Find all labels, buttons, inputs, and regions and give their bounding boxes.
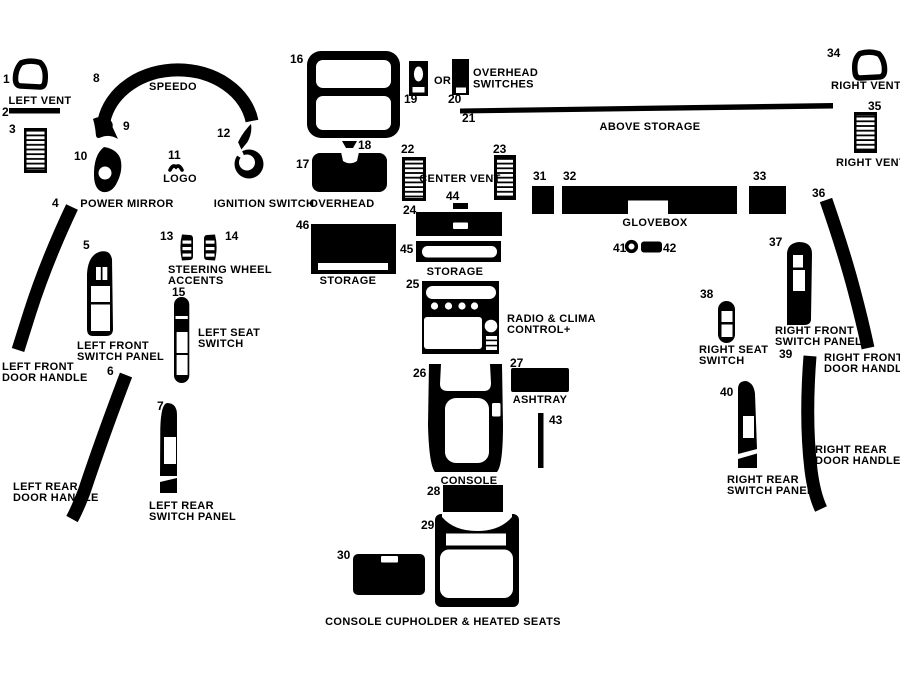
part-number-17: 17: [296, 157, 310, 171]
part-overhead-accent: [342, 141, 357, 148]
part-number-10: 10: [74, 149, 88, 163]
part-number-30: 30: [337, 548, 351, 562]
label-left-front-switch-panel-line2: SWITCH PANEL: [77, 351, 164, 363]
part-glovebox-trim-right: [749, 186, 786, 214]
label-left-seat-switch-line2: SWITCH: [198, 338, 243, 350]
part-number-32: 32: [563, 169, 577, 183]
label-overhead: OVERHEAD: [309, 198, 374, 210]
part-right-vent-grille: [854, 112, 877, 153]
part-number-29: 29: [421, 518, 435, 532]
part-number-14: 14: [225, 229, 239, 243]
label-glovebox: GLOVEBOX: [622, 217, 687, 229]
part-steering-wheel-accent-right: [204, 235, 217, 261]
part-left-seat-switch: [174, 297, 189, 383]
part-number-35: 35: [868, 99, 882, 113]
part-number-5: 5: [83, 238, 90, 252]
label-storage-center: STORAGE: [427, 266, 484, 278]
label-right-vent-upper: RIGHT VENT: [831, 80, 900, 92]
part-ashtray-trim: [511, 368, 569, 392]
label-left-rear-door-handle-line2: DOOR HANDLE: [13, 492, 99, 504]
part-number-25: 25: [406, 277, 420, 291]
label-right-front-door-handle-line2: DOOR HANDLE: [824, 363, 900, 375]
part-storage-trim-mid: [416, 241, 501, 262]
part-number-11: 11: [168, 148, 181, 162]
part-left-front-door-handle-trim: [18, 207, 72, 350]
part-number-16: 16: [290, 52, 304, 66]
part-number-27: 27: [510, 356, 524, 370]
part-number-39: 39: [779, 347, 793, 361]
part-number-12: 12: [217, 126, 231, 140]
part-overhead-console: [312, 152, 387, 192]
part-number-3: 3: [9, 122, 16, 136]
part-glovebox-trim: [562, 186, 737, 214]
part-power-mirror-accent: [93, 117, 118, 139]
part-right-front-switch-panel: [787, 242, 812, 325]
part-number-2: 2: [2, 105, 9, 119]
part-overhead-console-frame: [307, 51, 400, 138]
part-logo-accent: [170, 166, 182, 170]
part-ignition-switch-bezel: [227, 124, 264, 179]
part-power-mirror-bezel: [94, 147, 121, 192]
part-steering-wheel-accent-left: [180, 235, 193, 261]
part-number-23: 23: [493, 142, 507, 156]
part-number-24: 24: [403, 203, 417, 217]
part-number-43: 43: [549, 413, 563, 427]
part-number-6: 6: [107, 364, 114, 378]
part-left-front-switch-panel: [87, 251, 113, 336]
part-number-37: 37: [769, 235, 783, 249]
part-console-trim-lower: [443, 485, 503, 512]
part-number-13: 13: [160, 229, 174, 243]
label-speedo: SPEEDO: [149, 81, 197, 93]
part-number-19: 19: [404, 92, 418, 106]
part-radio-climate-bezel: [422, 281, 499, 354]
part-speedo-hood-trim: [104, 70, 252, 121]
label-right-rear-door-handle-line2: DOOR HANDLE: [815, 455, 900, 467]
label-right-vent-lower: RIGHT VENT: [836, 157, 900, 169]
label-power-mirror: POWER MIRROR: [80, 198, 173, 210]
part-heated-seats-panel: [353, 554, 425, 595]
part-number-38: 38: [700, 287, 714, 301]
part-number-41: 41: [613, 241, 627, 255]
part-left-vent: [15, 61, 45, 87]
label-right-rear-switch-panel-line2: SWITCH PANEL: [727, 485, 814, 497]
label-or: OR: [434, 75, 451, 87]
part-number-1: 1: [3, 72, 10, 86]
part-number-7: 7: [157, 399, 164, 413]
label-storage-left: STORAGE: [320, 275, 377, 287]
label-ignition-switch: IGNITION SWITCH: [214, 198, 315, 210]
label-right-front-switch-panel-line2: SWITCH PANEL: [775, 336, 862, 348]
part-right-seat-switch: [718, 301, 735, 343]
part-left-rear-switch-panel: [160, 403, 177, 493]
dash-kit-diagram: 1 2 3 4 5 6 7 8 9 10 11 12 13 14 15 16 1…: [0, 0, 900, 675]
label-center-vent: CENTER VENT: [419, 173, 500, 185]
part-number-46: 46: [296, 218, 310, 232]
part-small-trim-strip: [453, 203, 468, 209]
part-glovebox-trim-left: [532, 186, 554, 214]
part-number-28: 28: [427, 484, 441, 498]
part-number-4: 4: [52, 196, 59, 210]
part-number-36: 36: [812, 186, 826, 200]
label-ashtray: ASHTRAY: [513, 394, 568, 406]
label-right-seat-switch-line2: SWITCH: [699, 355, 744, 367]
part-number-18: 18: [358, 138, 372, 152]
part-number-26: 26: [413, 366, 427, 380]
part-number-20: 20: [448, 92, 462, 106]
part-number-45: 45: [400, 242, 414, 256]
label-radio-clima-line2: CONTROL+: [507, 324, 571, 336]
part-number-21: 21: [462, 111, 476, 125]
label-overhead-switches-line2: SWITCHES: [473, 79, 534, 91]
label-left-front-door-handle-line2: DOOR HANDLE: [2, 372, 88, 384]
part-number-31: 31: [533, 169, 547, 183]
part-left-vent-grille: [24, 128, 47, 173]
part-above-storage-trim: [460, 103, 833, 114]
label-steering-wheel-accents-line2: ACCENTS: [168, 275, 224, 287]
part-number-33: 33: [753, 169, 767, 183]
part-number-8: 8: [93, 71, 100, 85]
part-right-vent: [855, 52, 885, 78]
label-above-storage: ABOVE STORAGE: [600, 121, 701, 133]
part-number-15: 15: [172, 285, 186, 299]
label-console-cupholder: CONSOLE CUPHOLDER & HEATED SEATS: [325, 616, 561, 628]
part-console-side-strip: [538, 413, 544, 468]
part-overhead-switch-b: [452, 59, 469, 95]
label-left-vent: LEFT VENT: [8, 95, 71, 107]
part-number-40: 40: [720, 385, 734, 399]
part-storage-trim-upper: [416, 212, 502, 236]
label-logo: LOGO: [163, 173, 197, 185]
part-right-rear-switch-panel: [738, 381, 757, 468]
label-console: CONSOLE: [441, 475, 498, 487]
part-storage-bin-trim: [311, 224, 396, 274]
part-number-44: 44: [446, 189, 460, 203]
part-overhead-switch-a: [409, 61, 428, 96]
dash-kit-diagram-svg: 1 2 3 4 5 6 7 8 9 10 11 12 13 14 15 16 1…: [0, 0, 900, 675]
part-number-22: 22: [401, 142, 415, 156]
part-number-34: 34: [827, 46, 841, 60]
part-small-accent: [641, 242, 662, 253]
part-number-9: 9: [123, 119, 130, 133]
label-overhead-switches-line1: OVERHEAD: [473, 67, 538, 79]
label-left-rear-switch-panel-line2: SWITCH PANEL: [149, 511, 236, 523]
part-console-bezel: [428, 364, 503, 472]
part-number-42: 42: [663, 241, 677, 255]
part-left-vent-trim-bar: [9, 108, 60, 114]
part-cupholder-bezel: [435, 514, 519, 607]
part-ring-accent: [627, 242, 637, 252]
